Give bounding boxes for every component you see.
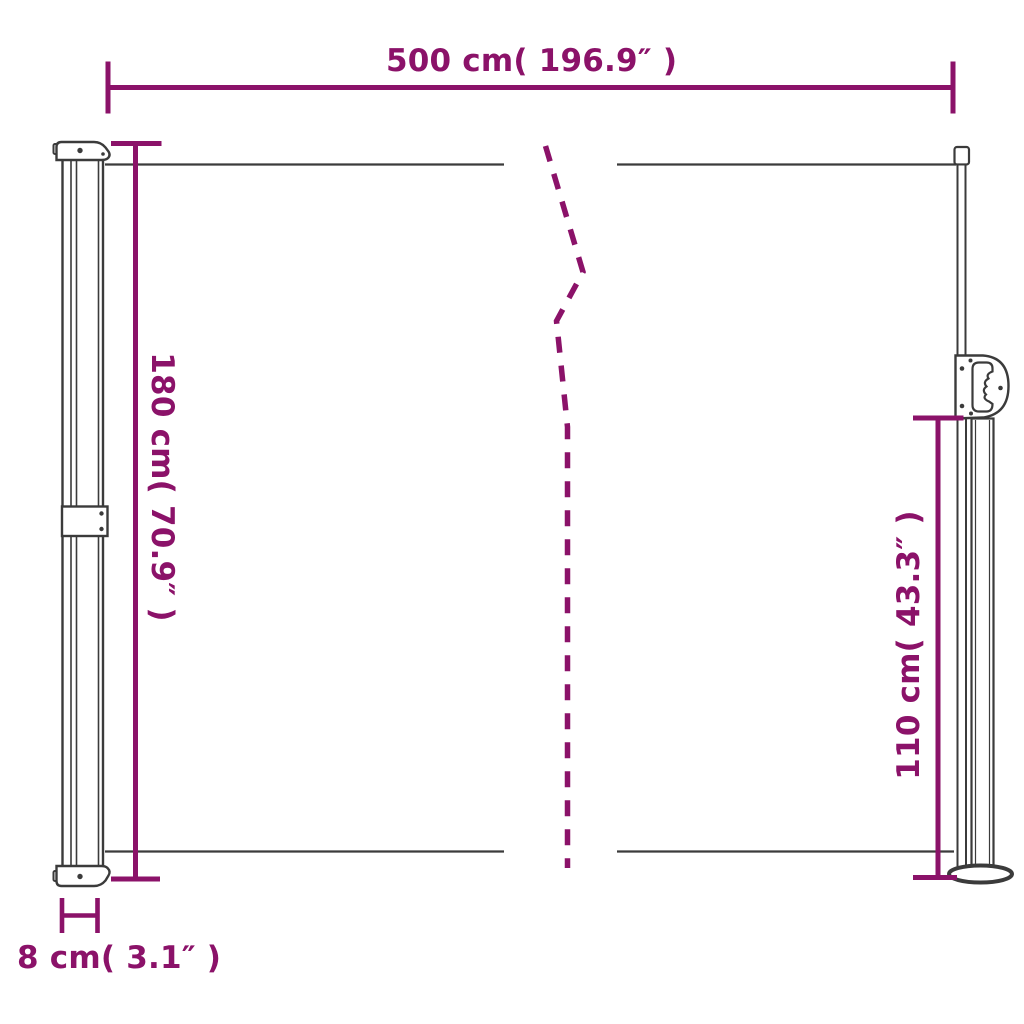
- pole-base: [949, 866, 1012, 883]
- screw-icon: [101, 152, 105, 156]
- cassette-bottom-cap: [54, 866, 110, 886]
- screw-icon: [998, 386, 1003, 391]
- pole-upper: [958, 165, 966, 356]
- screw-icon: [969, 359, 973, 363]
- screw-icon: [99, 511, 103, 515]
- handle: [956, 356, 1009, 419]
- width-dimension-label: 500 cm( 196.9″ ): [386, 44, 677, 78]
- screw-icon: [77, 874, 82, 879]
- diagram-canvas: 500 cm( 196.9″ ) 180 cm( 70.9″ ) 110 cm(…: [0, 0, 1024, 1024]
- break-line: [546, 146, 584, 868]
- screw-icon: [969, 412, 973, 416]
- depth-dimension: [62, 898, 98, 933]
- screw-icon: [960, 404, 965, 409]
- cassette-top-cap: [54, 142, 110, 160]
- dimension-annotations: [62, 62, 964, 934]
- screw-icon: [77, 148, 82, 153]
- pole-top-cap: [955, 147, 970, 165]
- pole-lower-outer: [972, 419, 994, 866]
- pole-height-dimension-label: 110 cm( 43.3″ ): [892, 510, 926, 779]
- depth-dimension-label: 8 cm( 3.1″ ): [17, 941, 221, 975]
- screw-icon: [99, 527, 103, 531]
- pole-lower-inner: [958, 419, 967, 869]
- cassette-mid-bracket: [62, 507, 108, 537]
- height-dimension-label: 180 cm( 70.9″ ): [145, 352, 179, 621]
- awning-drawing: [54, 142, 1013, 886]
- screw-icon: [960, 366, 965, 371]
